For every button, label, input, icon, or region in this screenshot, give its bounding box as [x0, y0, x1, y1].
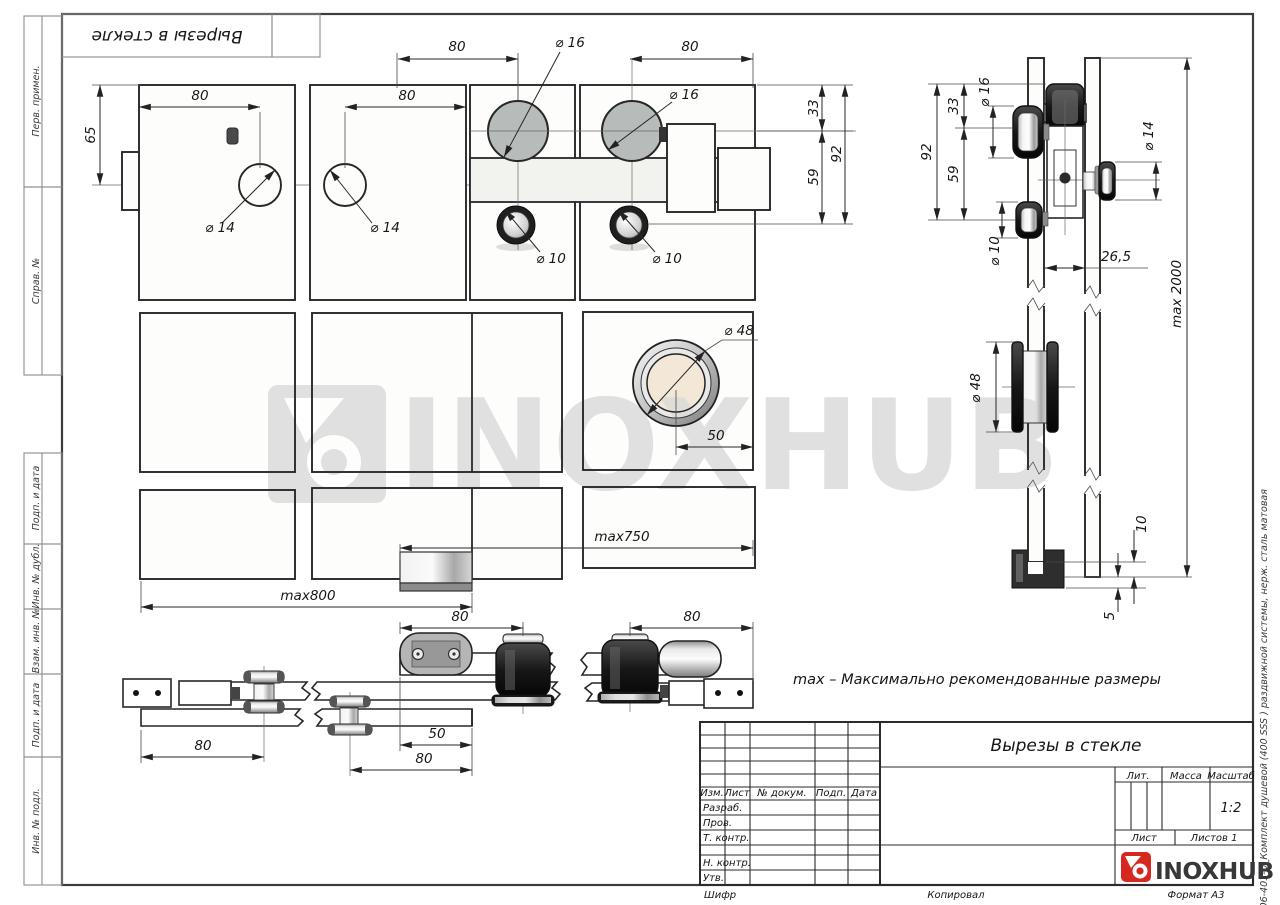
axle-block [659, 127, 667, 142]
masshtab-value: 1:2 [1221, 801, 1242, 816]
door-stopper [400, 552, 472, 591]
massa-label: Масса [1170, 771, 1202, 782]
dim-label: 92 [919, 143, 935, 160]
col-header: № докум. [756, 788, 806, 799]
margin-label: Инв. № дубл. [31, 544, 42, 609]
title-block-title: Вырезы в стекле [991, 736, 1142, 756]
row-label: Разраб. [703, 802, 742, 814]
wall-connector [179, 681, 231, 705]
glass-panel [140, 490, 295, 579]
dim-label: 80 [191, 88, 208, 104]
dim-label: 59 [806, 168, 822, 185]
wall-plate [704, 679, 753, 708]
dim-label: ⌀ 16 [669, 87, 699, 103]
dim-label: ⌀ 48 [968, 373, 984, 403]
wall-bracket [718, 148, 770, 210]
dim-label: 80 [194, 738, 211, 754]
col-header: Дата [850, 788, 877, 799]
format-label: Формат А3 [1168, 890, 1225, 901]
margin-label: Справ. № [31, 258, 42, 304]
dim-label: ⌀ 14 [1141, 121, 1157, 151]
lit-label: Лит. [1125, 771, 1149, 782]
dim-label: ⌀ 10 [652, 251, 682, 267]
dim-label: ⌀ 14 [205, 220, 235, 236]
guide-rail [470, 158, 760, 202]
file-note: Файл: 806-401-U_Комплект душевой (400 SS… [1259, 489, 1270, 905]
row-label: Утв. [703, 873, 724, 884]
drawing-note: max – Максимально рекомендованные размер… [793, 672, 1161, 688]
margin-label: Взам. инв. № [31, 609, 42, 674]
margin-label: Подп. и дата [31, 465, 42, 530]
left-margin-stamps: Перв. примен. Справ. № Подп. и дата Инв.… [24, 16, 62, 885]
title-block: Вырезы в стекле Изм. Лист № докум. Подп.… [700, 722, 1274, 901]
dim-label: 80 [451, 609, 468, 625]
drawing-canvas: Перв. примен. Справ. № Подп. и дата Инв.… [0, 0, 1280, 905]
drawing-sheet: Перв. примен. Справ. № Подп. и дата Инв.… [0, 0, 1280, 905]
dim-label: ⌀ 10 [536, 251, 566, 267]
inoxhub-logo: INOXHUB [1121, 852, 1274, 885]
margin-label: Подп. и дата [31, 682, 42, 747]
glass-clamp [400, 633, 472, 675]
watermark-text: INOXHUB [398, 372, 1061, 519]
dim-label: 26,5 [1101, 249, 1131, 265]
dim-label: max750 [594, 529, 649, 545]
wall-connector [669, 681, 707, 705]
col-header: Лист [723, 788, 751, 799]
dim-label: 80 [415, 751, 432, 767]
dim-label: ⌀ 16 [555, 35, 585, 51]
logo-text: INOXHUB [1155, 857, 1274, 885]
mirrored-title: Вырезы в стекле [92, 26, 243, 46]
margin-label: Инв. № подл. [31, 788, 42, 854]
wheel-hub [340, 708, 358, 724]
shifr-label: Шифр [704, 890, 736, 901]
roller-metal-plan [659, 641, 721, 677]
col-header: Подп. [816, 788, 846, 799]
dim-label: ⌀ 14 [370, 220, 400, 236]
dim-label: 50 [707, 428, 724, 444]
kopiroval-label: Копировал [927, 890, 985, 901]
roller-plan-center [492, 626, 554, 714]
margin-label: Перв. примен. [31, 65, 42, 136]
pin [231, 687, 240, 699]
roller-plan-right [598, 627, 662, 712]
dim-label: 65 [83, 126, 99, 143]
dim-label: ⌀ 16 [977, 77, 993, 107]
list-label: Лист [1130, 833, 1158, 844]
dim-label: 59 [946, 165, 962, 182]
masshtab-label: Масштаб [1207, 770, 1255, 782]
row-label: Т. контр. [703, 833, 750, 844]
row-label: Пров. [703, 818, 732, 829]
glass-side-fixed [1085, 58, 1100, 577]
door-knob-plate [122, 152, 140, 210]
dim-label: 80 [681, 39, 698, 55]
dim-label: 33 [806, 99, 822, 116]
dim-label: ⌀ 10 [987, 236, 1003, 266]
col-header: Изм. [700, 788, 724, 799]
dim-label: max 2000 [1169, 260, 1185, 328]
pin [660, 685, 669, 698]
dim-label: 80 [683, 609, 700, 625]
view-plan-bottom [123, 626, 753, 776]
wall-plate [123, 679, 171, 707]
listov-label: Листов 1 [1190, 833, 1238, 844]
top-stamp: Вырезы в стекле [62, 14, 320, 57]
dim-label: 10 [1134, 515, 1150, 532]
dim-label: 50 [428, 726, 445, 742]
dim-label: ⌀ 48 [724, 323, 754, 339]
dim-label: 5 [1102, 612, 1118, 621]
dim-label: 33 [946, 97, 962, 114]
adjust-screw [1060, 173, 1071, 184]
dim-label: 92 [829, 145, 845, 162]
wall-bracket [667, 124, 715, 212]
dim-label: 80 [448, 39, 465, 55]
fixing-pin [227, 128, 238, 144]
row-label: Н. контр. [703, 858, 751, 869]
guide-slot [1028, 562, 1043, 574]
dim-label: 80 [398, 88, 415, 104]
wheel-hub [254, 684, 274, 700]
dim-label: max800 [280, 588, 335, 604]
